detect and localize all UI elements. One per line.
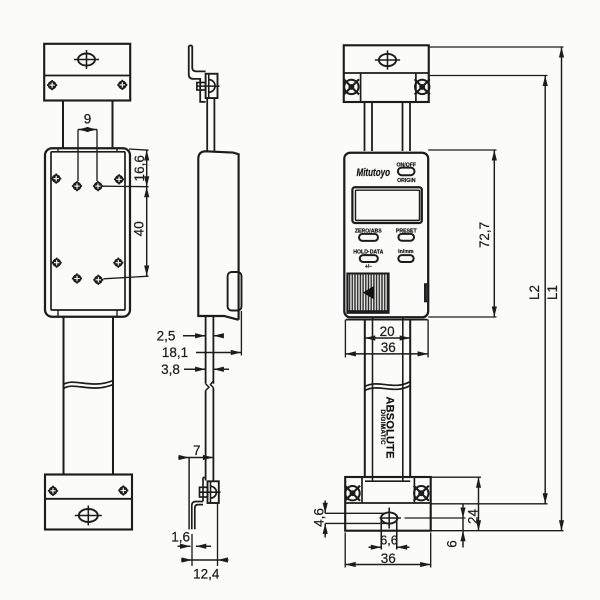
svg-text:+/−: +/− [365,264,372,270]
svg-text:72,7: 72,7 [477,222,492,248]
svg-text:6: 6 [444,540,459,548]
svg-text:2,5: 2,5 [157,328,176,343]
svg-text:18,1: 18,1 [162,345,188,360]
svg-text:16,6: 16,6 [132,155,147,181]
svg-text:20: 20 [380,324,395,339]
svg-text:1,6: 1,6 [171,529,190,544]
svg-text:DIGIMATIC: DIGIMATIC [379,410,386,446]
svg-text:36: 36 [381,340,396,355]
svg-text:12,4: 12,4 [193,567,220,582]
svg-text:40: 40 [132,221,147,236]
svg-text:3,8: 3,8 [161,362,180,377]
svg-text:L1: L1 [545,285,560,300]
svg-text:L2: L2 [527,285,542,300]
svg-text:36: 36 [381,551,396,566]
svg-text:7: 7 [193,443,201,458]
svg-text:4,6: 4,6 [311,508,326,527]
svg-text:ORIGIN: ORIGIN [397,178,416,184]
svg-text:9: 9 [84,112,92,127]
svg-text:Mitutoyo: Mitutoyo [357,167,391,179]
svg-text:24: 24 [465,509,480,525]
svg-text:6,6: 6,6 [380,533,397,547]
